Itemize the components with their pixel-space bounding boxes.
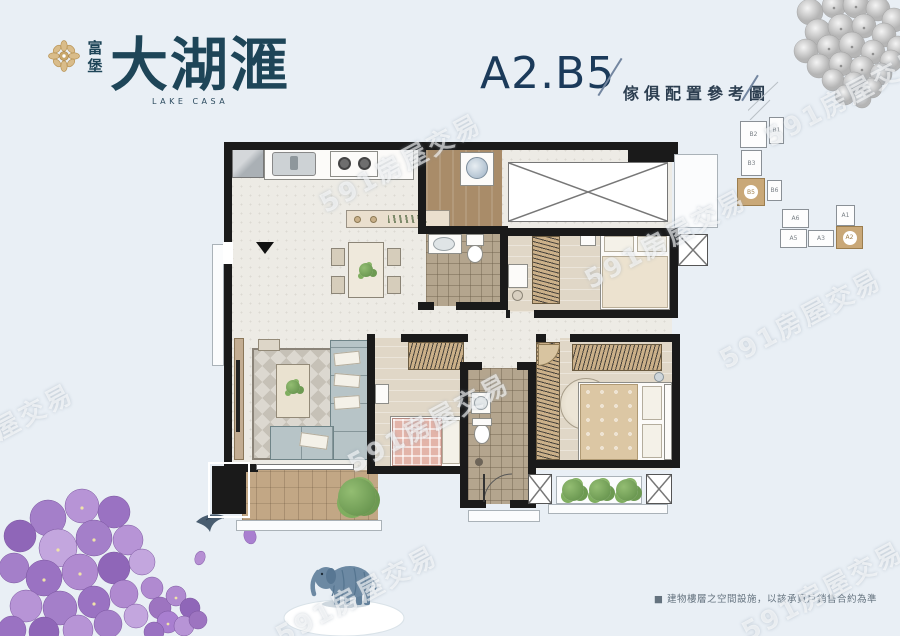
bathroom-2-basin — [474, 396, 488, 410]
headboard — [664, 384, 672, 460]
sofa-pillow — [333, 373, 360, 388]
wall — [672, 334, 680, 468]
exterior-trim — [236, 520, 382, 531]
burner — [358, 157, 371, 170]
watermark-text: 591房屋交易 — [734, 532, 900, 636]
master-wardrobe — [572, 344, 662, 371]
bar-dish — [354, 216, 361, 223]
wall — [418, 302, 434, 310]
shower-drain — [475, 458, 483, 466]
wall — [367, 334, 375, 474]
dining-chair — [331, 276, 345, 294]
bedroom-2-closet — [532, 236, 560, 304]
wall — [506, 310, 510, 318]
sofa-pillow — [333, 351, 360, 367]
keyplan-unit-a6: A6 — [782, 209, 809, 228]
bathroom-1-toilet-bowl — [467, 245, 483, 263]
wall — [460, 362, 468, 508]
wall — [418, 226, 506, 234]
wall — [500, 226, 508, 310]
bed-pillow — [442, 420, 460, 464]
keyplan-unit-a1: A1 — [836, 205, 855, 226]
keyplan-unit-b3: B3 — [741, 150, 762, 176]
bedroom-3-blanket — [392, 418, 442, 466]
bathroom-1-basin — [433, 237, 455, 251]
wall — [506, 228, 676, 236]
wall — [401, 334, 468, 342]
coffee-table-plant — [286, 380, 300, 394]
sliding-window — [256, 464, 354, 470]
wall — [224, 262, 232, 472]
tv-screen — [236, 360, 240, 432]
washer-drum — [466, 157, 488, 179]
void-area-cross — [508, 162, 668, 222]
poster-canvas: 富堡 大湖滙 LAKE CASA A2.B5 傢俱配置參考圖 B2 B1 B3 … — [0, 0, 900, 636]
sofa-pillow — [334, 395, 361, 410]
unit-code-title: A2.B5 — [480, 48, 615, 99]
door-swing-arc — [480, 470, 514, 504]
keyplan-highlight-badge: A2 — [843, 231, 857, 245]
keyplan-unit-b5-highlighted: B5 — [737, 178, 765, 206]
wall — [224, 142, 232, 244]
bedroom-2-stool — [512, 290, 523, 301]
keyplan-unit-a5: A5 — [780, 229, 807, 248]
wall — [224, 142, 632, 150]
balcony-plant — [338, 478, 376, 516]
logo-flower-icon — [48, 40, 80, 72]
keyplan-unit-b6: B6 — [767, 180, 782, 201]
burner — [338, 157, 351, 170]
dining-chair — [387, 276, 401, 294]
logo-subtitle: LAKE CASA — [152, 97, 228, 106]
bed-pillow — [637, 236, 667, 252]
keyplan-unit-b1: B1 — [769, 117, 784, 144]
wall — [534, 310, 678, 318]
shaft-cross — [528, 474, 552, 504]
side-ledge — [674, 154, 718, 228]
exterior-trim — [468, 510, 540, 522]
wall — [418, 142, 426, 234]
bird-illustration — [196, 514, 226, 532]
wall — [367, 466, 468, 474]
dining-chair — [387, 248, 401, 266]
floor-plan — [212, 126, 724, 538]
exterior-trim — [548, 504, 668, 514]
faucet — [290, 156, 298, 170]
entry-door-gap — [223, 242, 233, 264]
disclaimer-text: ■ 建物樓層之空間設施，以該承買戶銷售合約為準 — [654, 591, 877, 605]
wall — [536, 460, 680, 468]
keyplan-unit-a2-highlighted: A2 — [836, 226, 863, 249]
bedroom-2-vanity — [508, 264, 528, 288]
bed-pillow — [642, 386, 662, 420]
bathroom-2-toilet-tank — [472, 418, 492, 426]
logo-brand-prefix: 富堡 — [86, 40, 103, 76]
wall — [536, 334, 546, 342]
nightstand — [375, 384, 389, 404]
bedroom-2-blanket — [602, 256, 668, 308]
table-plant — [359, 263, 373, 277]
fridge — [232, 148, 264, 178]
bathroom-2-toilet-bowl — [474, 424, 490, 444]
logo-project-name: 大湖滙 — [110, 18, 290, 102]
bed-pillow — [604, 236, 634, 252]
wall — [570, 334, 680, 342]
planter-bush — [562, 479, 584, 501]
watermark-text: 591房屋交易 — [712, 260, 888, 377]
bar-dish — [370, 216, 377, 223]
bedside-lamp — [654, 372, 664, 382]
master-blanket — [580, 384, 638, 460]
keyplan-highlight-badge: B5 — [744, 185, 758, 199]
bedroom-3-wardrobe — [408, 342, 464, 370]
dining-chair — [331, 248, 345, 266]
keyplan-unit-b2: B2 — [740, 121, 767, 148]
wall — [628, 142, 678, 162]
elephant-figurine-illustration — [282, 540, 406, 636]
hydrangea-illustration-gray — [748, 0, 900, 120]
bed-pillow — [642, 424, 662, 458]
planter-bush — [616, 479, 638, 501]
entrance-arrow-icon — [256, 242, 274, 254]
wall — [670, 228, 678, 318]
wall — [456, 302, 508, 310]
shaft-cross — [646, 474, 672, 504]
keyplan-unit-a3: A3 — [808, 230, 834, 247]
shaft-cross — [678, 234, 708, 266]
planter-bush — [589, 479, 611, 501]
side-table — [258, 339, 280, 351]
pillar — [212, 466, 246, 514]
